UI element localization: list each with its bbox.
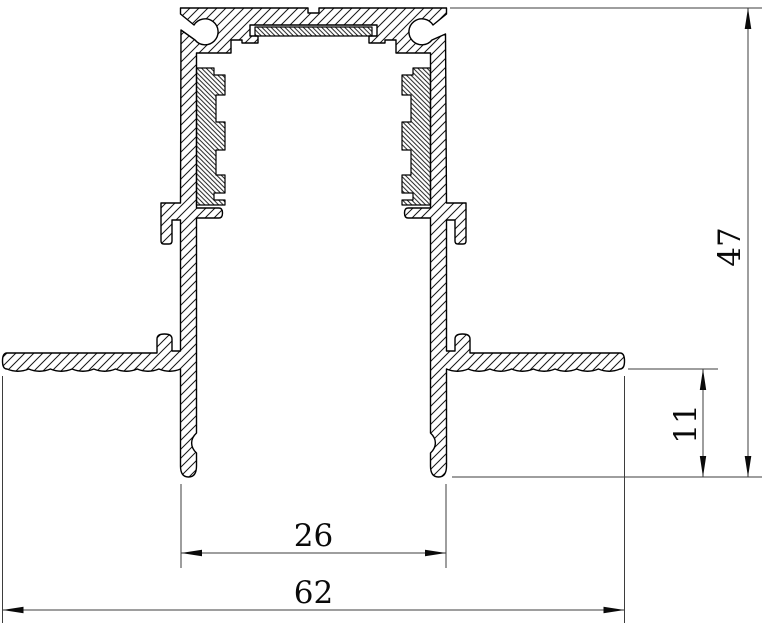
dimension-value-11: 11: [668, 404, 704, 443]
arrow-right-icon: [425, 550, 446, 556]
arrow-left-icon: [3, 607, 24, 613]
arrow-up-icon: [700, 369, 706, 390]
left-conductor-insert: [197, 68, 226, 205]
dimension-recess-depth: 11: [628, 369, 718, 477]
arrow-right-icon: [604, 607, 625, 613]
right-conductor-insert: [402, 68, 431, 205]
dimension-value-62: 62: [294, 575, 333, 611]
arrow-up-icon: [745, 8, 752, 29]
dimension-recess-width: 26: [181, 484, 446, 568]
dimension-overall-height: 47: [450, 8, 762, 477]
dimension-value-26: 26: [294, 518, 333, 554]
technical-drawing-canvas: 47 11 26 62: [0, 0, 768, 632]
aluminium-profile-body: [3, 8, 625, 477]
magnet-strip: [255, 27, 372, 36]
dimension-value-47: 47: [712, 227, 748, 266]
arrow-down-icon: [700, 456, 706, 477]
arrow-left-icon: [181, 550, 202, 556]
profile-section-drawing: 47 11 26 62: [0, 0, 768, 632]
arrow-down-icon: [745, 456, 752, 477]
dimension-overall-width: 62: [3, 376, 625, 623]
